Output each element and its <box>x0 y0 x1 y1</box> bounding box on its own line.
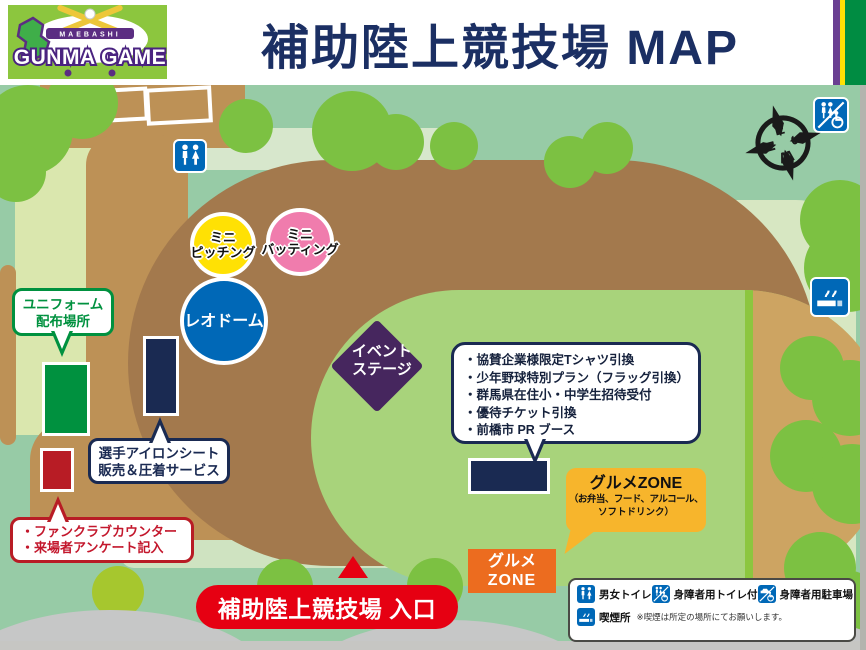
compass-e: E <box>772 120 786 139</box>
booth-iron-sheet <box>143 336 179 416</box>
header: MAEBASHI GUNMA GAME 補助陸上競技場 MAP <box>0 0 866 85</box>
smoking-area-icon <box>810 277 850 317</box>
bubble-tail <box>50 504 66 523</box>
bubble-text: ・来場者アンケート記入 <box>21 540 191 556</box>
gourmet-zone-label: グルメ <box>468 552 556 571</box>
page-title: 補助陸上競技場 MAP <box>175 0 825 85</box>
stadium-map-flyer: ミニ ピッチング ミニ バッティング レオドーム イベント ステージ <box>0 0 866 650</box>
gourmet-zone-label: ZONE <box>468 571 556 590</box>
bubble-tail <box>527 438 543 457</box>
legend-label: 身障者用駐車場 <box>780 587 854 602</box>
accessible-toilet-icon <box>652 585 670 603</box>
smoking-area-icon <box>577 608 595 626</box>
bubble-text: ユニフォーム <box>15 296 111 313</box>
map-canvas: ミニ ピッチング ミニ バッティング レオドーム イベント ステージ <box>0 85 866 650</box>
bubble-gourmet: グルメZONE （お弁当、フード、アルコール、 ソフトドリンク） <box>566 468 706 532</box>
bubble-stage-info: ・協賛企業様限定Tシャツ引換 ・少年野球特別プラン（フラッグ引換） ・群馬県在住… <box>451 342 701 444</box>
header-stripe-green <box>845 0 866 85</box>
zone-label: イベント ステージ <box>331 343 433 379</box>
legend-item: 喫煙所 <box>577 608 631 626</box>
compass-s: S <box>787 132 806 146</box>
bubble-list-item: ・少年野球特別プラン（フラッグ引換） <box>464 370 698 388</box>
bubble-list-item: ・群馬県在住小・中学生招待受付 <box>464 387 698 405</box>
gunma-game-logo: MAEBASHI GUNMA GAME <box>8 5 167 79</box>
bubble-tail <box>152 425 168 444</box>
header-stripe-purple <box>833 0 840 85</box>
legend-item: 身障者用駐車場 <box>758 585 854 603</box>
bubble-fanclub: ・ファンクラブカウンター ・来場者アンケート記入 <box>10 517 194 563</box>
zone-label-line: イベント <box>331 343 433 361</box>
tree <box>581 122 633 174</box>
bubble-list-item: ・協賛企業様限定Tシャツ引換 <box>464 352 698 370</box>
zone-label-line: ステージ <box>331 361 433 379</box>
legend-note: ※喫煙は所定の場所にてお願いします。 <box>637 611 788 623</box>
bubble-text: 選手アイロンシート <box>91 445 227 462</box>
legend-label: 身障者用トイレ付 <box>674 587 758 602</box>
zone-label: ミニ <box>210 230 236 245</box>
logo-maebashi: MAEBASHI <box>59 32 120 39</box>
path-bottom-bar <box>0 641 866 650</box>
bubble-text: 販売＆圧着サービス <box>91 462 227 479</box>
bubble-text: 配布場所 <box>15 313 111 330</box>
legend-item: 身障者用トイレ付 <box>652 585 758 603</box>
bubble-list-item: ・優待チケット引換 <box>464 405 698 423</box>
logo-gunma-game: GUNMA GAME <box>14 46 166 69</box>
zone-leo-dome: レオドーム <box>180 277 268 365</box>
infield-edge-strip <box>745 290 753 586</box>
court-outline <box>145 85 213 125</box>
tree <box>368 114 424 170</box>
zone-label: バッティング <box>261 242 338 257</box>
mens-womens-toilet-icon <box>577 585 595 603</box>
compass-rose: E S W N <box>741 101 825 185</box>
gourmet-zone-box: グルメ ZONE <box>468 549 556 593</box>
legend-label: 男女トイレ <box>599 587 652 602</box>
legend: 男女トイレ 身障者用トイレ付 身障者用駐車場 <box>568 578 856 642</box>
zone-label: レオドーム <box>184 314 264 329</box>
booth-fanclub <box>40 448 74 492</box>
legend-label: 喫煙所 <box>599 610 631 625</box>
bubble-text: ソフトドリンク） <box>566 506 706 519</box>
entrance-pill: 補助陸上競技場 入口 <box>196 585 458 629</box>
zone-mini-batting: ミニ バッティング <box>266 208 334 276</box>
zone-mini-pitching: ミニ ピッチング <box>190 212 256 278</box>
bubble-uniform: ユニフォーム 配布場所 <box>12 288 114 336</box>
tree <box>219 99 273 153</box>
legend-item: 男女トイレ <box>577 585 652 603</box>
zone-label: ミニ <box>287 227 313 242</box>
accessible-parking-icon <box>758 585 776 603</box>
booth-uniform <box>42 362 90 436</box>
compass-w: W <box>777 146 796 166</box>
mens-womens-toilet-icon <box>173 139 207 173</box>
map-right-border <box>860 85 866 650</box>
bubble-text: （お弁当、フード、アルコール、 <box>566 493 706 506</box>
bubble-list-item: ・前橋市 PR ブース <box>464 422 698 440</box>
zone-label: ピッチング <box>191 245 256 260</box>
bubble-title: グルメZONE <box>566 474 706 493</box>
bubble-tail <box>54 330 70 349</box>
compass-n: N <box>760 139 779 154</box>
bubble-iron-sheet: 選手アイロンシート 販売＆圧着サービス <box>88 438 230 484</box>
entrance-arrow <box>338 556 368 578</box>
bubble-text: ・ファンクラブカウンター <box>21 524 191 540</box>
tree <box>430 122 478 170</box>
entrance-label: 補助陸上競技場 入口 <box>218 590 436 624</box>
